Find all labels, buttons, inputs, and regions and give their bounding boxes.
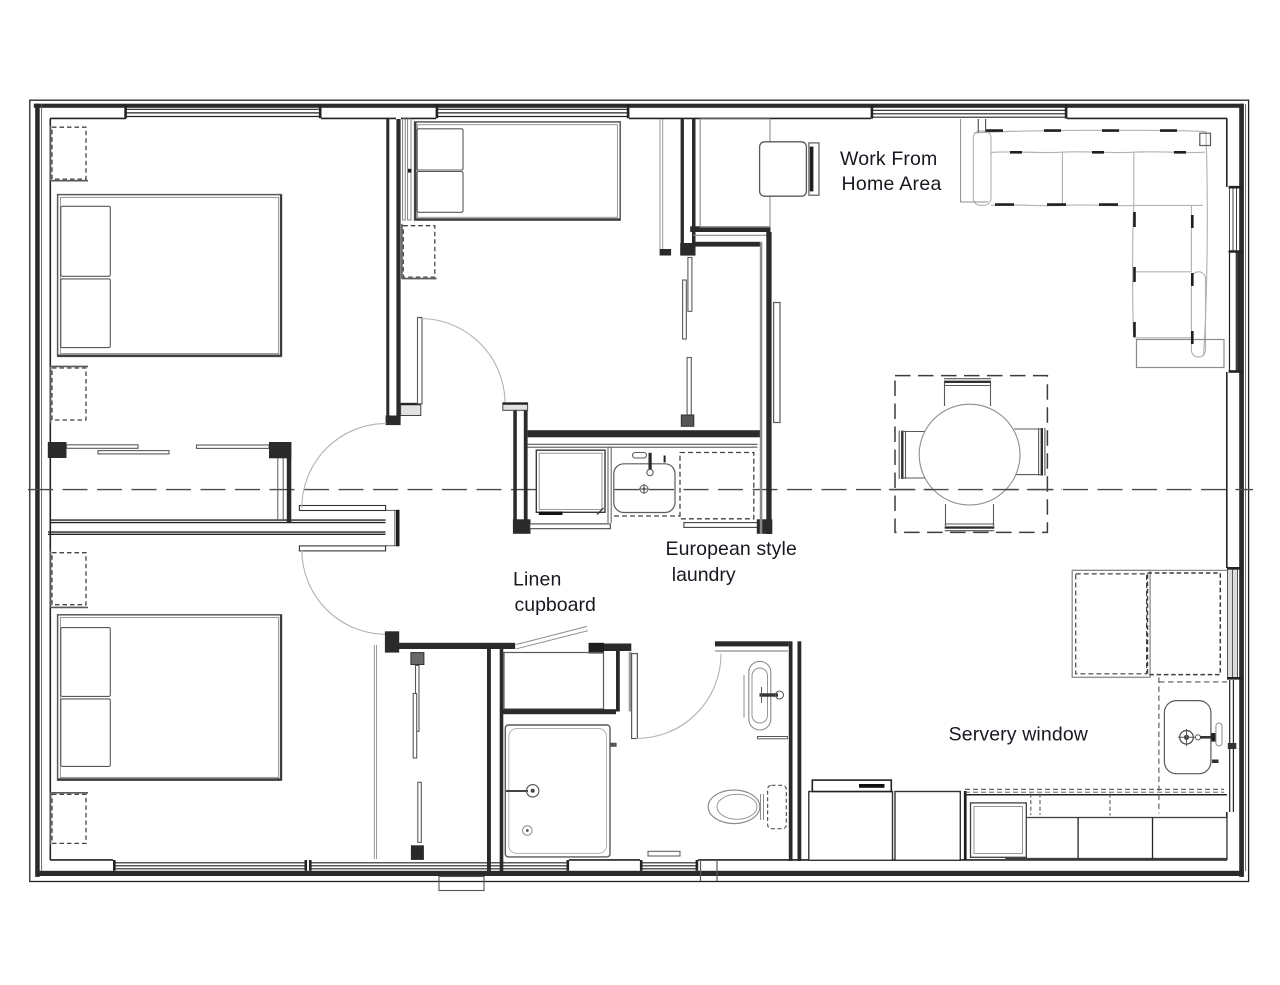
- svg-text:Home Area: Home Area: [842, 173, 942, 195]
- svg-text:Linen: Linen: [513, 569, 562, 591]
- svg-text:Work From: Work From: [840, 148, 938, 170]
- svg-text:European style: European style: [666, 538, 798, 560]
- svg-text:cupboard: cupboard: [515, 594, 597, 616]
- svg-text:laundry: laundry: [672, 564, 736, 586]
- svg-text:Servery window: Servery window: [949, 724, 1089, 746]
